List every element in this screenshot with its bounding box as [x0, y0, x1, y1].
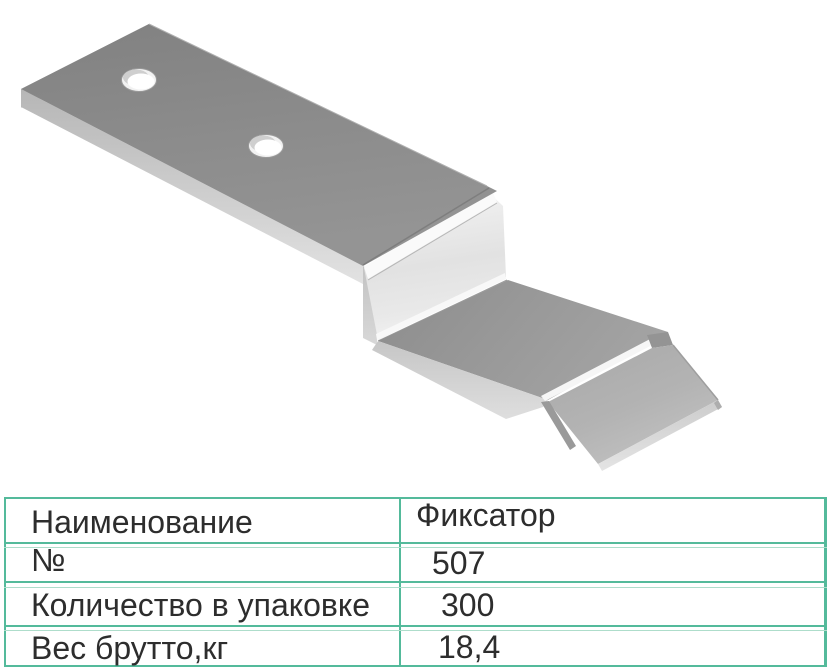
table-row-separator-shadow: [4, 547, 827, 548]
spec-value-name: Фиксатор: [416, 498, 556, 533]
table-row-separator: [4, 625, 827, 627]
table-row-separator: [4, 542, 827, 544]
spec-label-name: Наименование: [31, 505, 253, 540]
part-illustration: [0, 0, 829, 670]
bracket-part: [21, 24, 722, 471]
spec-label-weight: Вес брутто,кг: [31, 631, 228, 666]
spec-label-quantity: Количество в упаковке: [31, 588, 370, 623]
countersunk-hole-1: [122, 69, 157, 92]
spec-value-quantity: 300: [441, 588, 494, 623]
table-row-separator: [4, 581, 827, 583]
spec-value-number: 507: [432, 546, 485, 581]
spec-label-number: №: [31, 543, 65, 578]
spec-value-weight: 18,4: [438, 630, 500, 665]
countersunk-hole-2: [249, 135, 284, 158]
catalog-page: Наименование Фиксатор № 507 Количество в…: [0, 0, 829, 670]
